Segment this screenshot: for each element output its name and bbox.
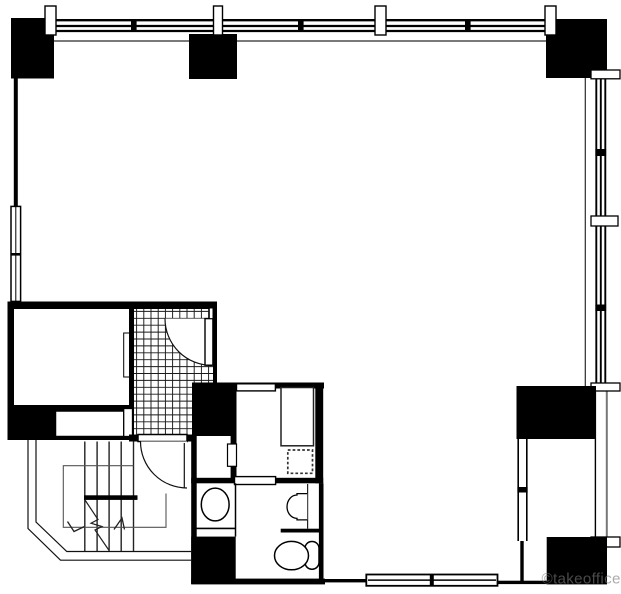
svg-text:©takeofficetokyo: ©takeofficetokyo [542,571,621,588]
